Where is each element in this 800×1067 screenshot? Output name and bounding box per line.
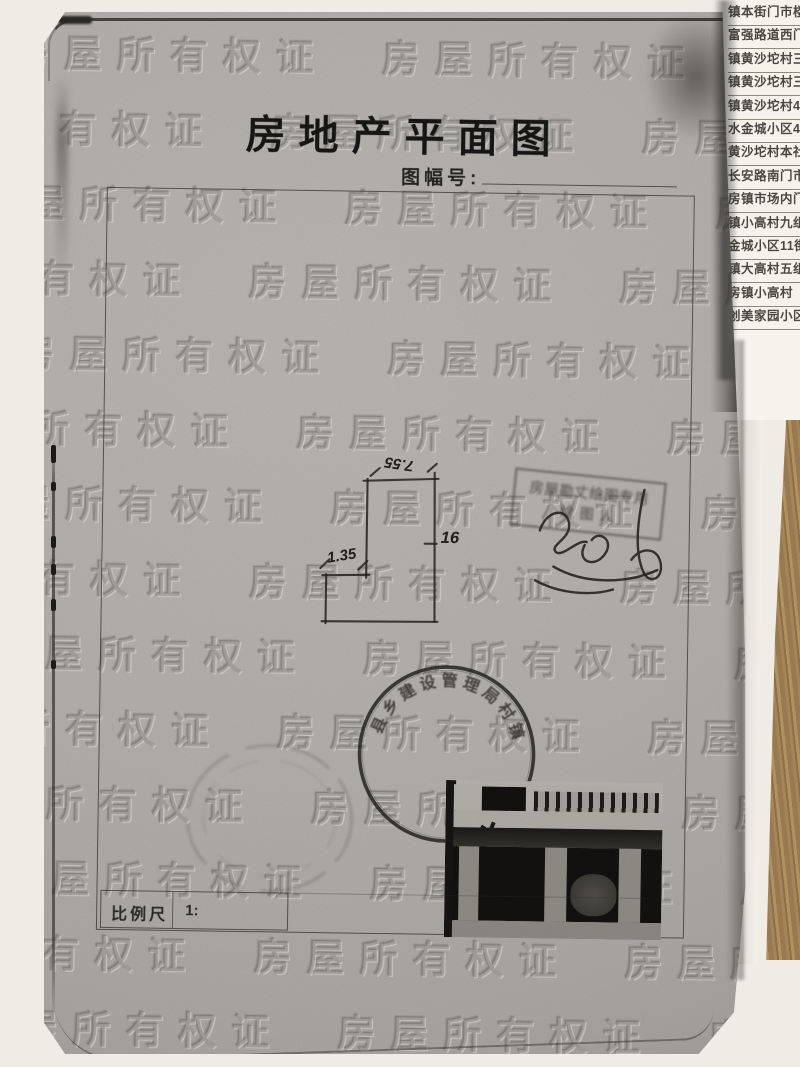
photo-column xyxy=(544,847,567,921)
address-list-item: 镇黄沙坨村4组 xyxy=(728,96,800,120)
paper-edge-mark xyxy=(51,536,56,548)
address-list-item: 镇黄沙坨村三组 xyxy=(728,72,800,96)
floor-plan-certificate-scan: 镇本街门市楼富强路道西门市镇黄沙坨村三组镇黄沙坨村三组镇黄沙坨村4组水金城小区4… xyxy=(0,0,800,1067)
scale-label: 比例尺 xyxy=(111,900,168,925)
dimension-step: 1.35 xyxy=(326,545,358,567)
photo-sill xyxy=(452,920,661,940)
address-list-item: 金城小区11街 xyxy=(728,236,800,260)
page-content: 房屋所有权证 房屋所有权证 房屋所有权证 房屋所有权证房屋所有权证 房屋所有权证… xyxy=(44,12,748,1054)
round-stamp-arc-text: 县乡建设管理局村镇 xyxy=(368,670,530,746)
building-photo xyxy=(444,780,663,940)
paper-edge-mark xyxy=(51,660,56,669)
address-list-item: 房镇市场内门 xyxy=(728,189,800,213)
paper-edge-mark xyxy=(51,482,56,491)
sheet-number-blank-line xyxy=(482,165,677,187)
faint-round-stamp xyxy=(176,735,363,903)
photo-railing-balusters xyxy=(534,791,659,813)
page-top-edge xyxy=(48,18,740,81)
address-list-item: 富强路道西门市 xyxy=(728,25,800,49)
scale-box-divider xyxy=(172,892,174,928)
dimension-top: 7.55 xyxy=(383,453,415,474)
sheet-number-label: 图幅号: xyxy=(401,167,481,189)
photo-storefront xyxy=(452,846,662,923)
scale-box: 比例尺 1: xyxy=(100,890,289,931)
photo-vehicle xyxy=(570,874,617,917)
address-list-item: 创美家园小区 xyxy=(728,306,800,330)
page-cast-shadow xyxy=(714,0,736,380)
plan-right-wall xyxy=(432,473,436,622)
page-title: 房地产平面图 xyxy=(245,102,564,165)
address-list-item: 长安路南门市楼 xyxy=(728,166,800,190)
plan-tick xyxy=(428,464,437,472)
certificate-page: 房屋所有权证 房屋所有权证 房屋所有权证 房屋所有权证房屋所有权证 房屋所有权证… xyxy=(44,12,748,1054)
plan-bottom-wall xyxy=(321,620,437,623)
address-list-item: 镇小高村九组 xyxy=(728,213,800,237)
photo-column xyxy=(618,849,641,923)
scale-value: 1: xyxy=(185,902,199,919)
paper-edge-mark xyxy=(51,599,56,611)
address-list-item: 镇大高村五组 xyxy=(728,259,800,283)
plan-tick xyxy=(371,468,380,476)
page-cast-shadow-lower xyxy=(726,340,744,980)
svg-text:县乡建设管理局村镇: 县乡建设管理局村镇 xyxy=(368,670,530,746)
photo-roof-railing xyxy=(454,784,656,813)
page-left-smudge xyxy=(56,77,68,287)
address-list-item: 房镇小高村 xyxy=(728,283,800,307)
dimension-right: 16 xyxy=(441,529,460,547)
address-list-item: 黄沙坨村本社 xyxy=(728,142,800,166)
floor-plan-sketch: 7.55 1.35 16 xyxy=(297,438,510,641)
sheet-number-row: 图幅号: xyxy=(401,162,678,193)
paper-edge-mark xyxy=(51,564,56,575)
address-list-item: 镇黄沙坨村三组 xyxy=(728,49,800,73)
address-list-item: 水金城小区4街 xyxy=(728,119,800,143)
plan-step-wall xyxy=(322,574,369,576)
photo-column xyxy=(458,846,479,920)
page-edge-mark xyxy=(58,16,92,24)
address-list-item: 镇本街门市楼 xyxy=(728,2,800,26)
photo-roof-window xyxy=(482,787,526,812)
plan-top-wall xyxy=(364,478,439,482)
page-left-edge xyxy=(52,432,55,1022)
handwritten-signature xyxy=(527,480,699,603)
paper-edge-mark xyxy=(51,445,56,463)
plan-left-wall xyxy=(325,574,326,623)
